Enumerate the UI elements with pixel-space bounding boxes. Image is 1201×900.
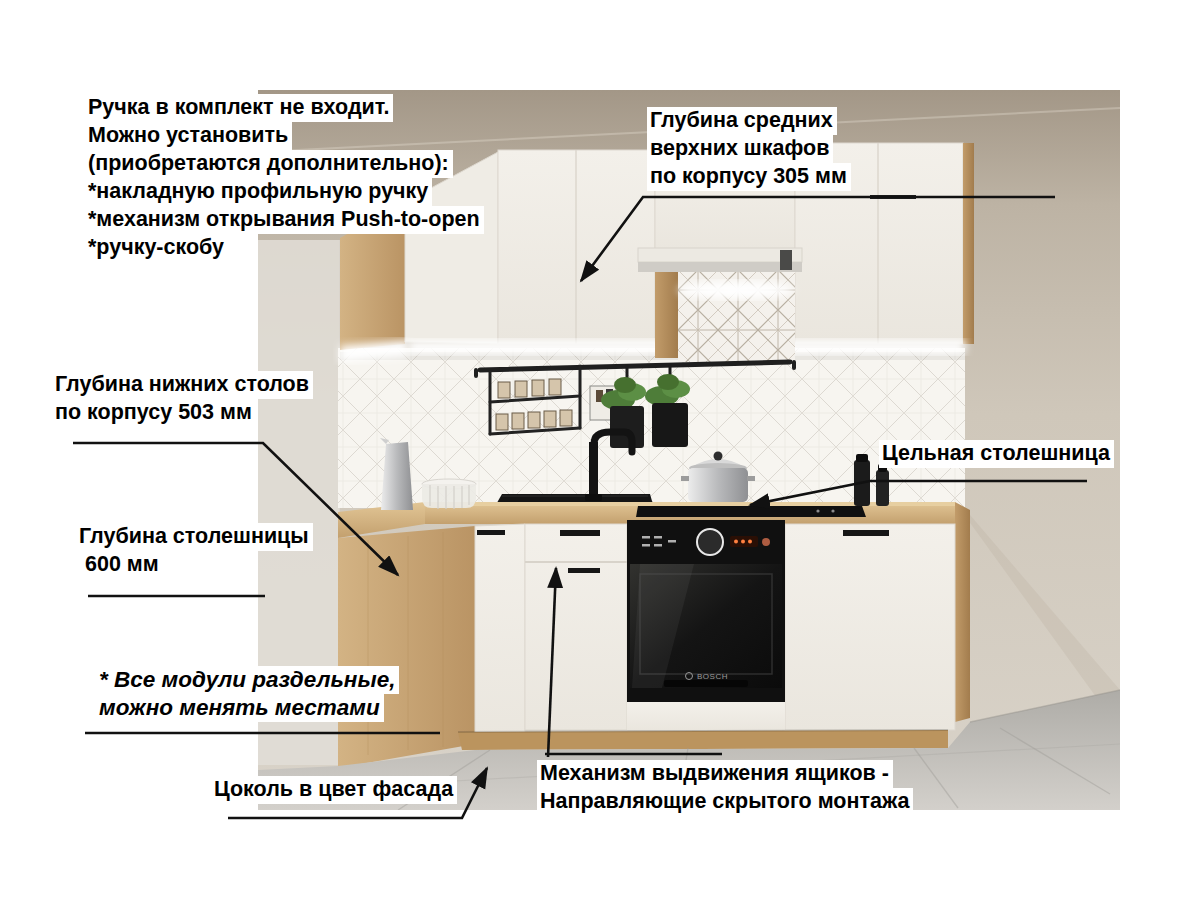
annotation-line: верхних шкафов	[647, 135, 833, 163]
annotation-line: Можно установить	[85, 122, 292, 150]
annotation-line: по корпусу 503 мм	[52, 399, 256, 427]
annotation-line: *ручку-скобу	[85, 234, 228, 262]
oven-brand: BOSCH	[697, 672, 728, 681]
annotation-line: 600 мм	[76, 551, 163, 579]
annotation-line: Механизм выдвижения ящиков -	[537, 760, 893, 788]
annotation-solid-countertop: Цельная столешница	[879, 440, 1114, 468]
drawer-handle-top	[560, 530, 600, 536]
oven-handle	[664, 680, 748, 687]
annotation-drawer-note: Механизм выдвижения ящиков - Направляющи…	[537, 760, 913, 816]
annotation-line: Цоколь в цвет фасада	[211, 776, 457, 804]
drawer-handle-bottom	[568, 568, 600, 573]
annotation-base-depth: Глубина нижних столов по корпусу 503 мм	[52, 371, 313, 427]
annotation-handle-note: Ручка в комплект не входит. Можно устано…	[85, 94, 484, 262]
toe-kick	[458, 730, 948, 750]
annotation-line: Цельная столешница	[879, 440, 1114, 468]
annotation-modules-note: * Все модули раздельные, можно менять ме…	[96, 666, 399, 722]
extractor-hood	[638, 248, 802, 362]
counter-end-panel	[955, 502, 970, 722]
upper-cabinet-handle	[870, 195, 916, 199]
annotation-plinth-note: Цоколь в цвет фасада	[211, 776, 457, 804]
annotation-line: Направляющие скрытого монтажа	[537, 788, 913, 816]
annotated-kitchen-diagram: BOSCH	[0, 0, 1201, 900]
annotation-line: *механизм открывания Push-to-open	[85, 206, 484, 234]
annotation-countertop-depth: Глубина столешницы 600 мм	[76, 523, 313, 579]
annotation-line: Глубина нижних столов	[52, 371, 313, 399]
drawer-unit	[525, 524, 627, 730]
annotation-line: Ручка в комплект не входит.	[85, 94, 393, 122]
annotation-line: *накладную профильную ручку	[85, 178, 432, 206]
oven: BOSCH	[627, 520, 785, 702]
annotation-line: можно менять местами	[96, 694, 384, 722]
base-oak-side-panel	[338, 526, 475, 768]
annotation-line: Глубина столешницы	[76, 523, 313, 551]
annotation-upper-depth: Глубина средних верхних шкафов по корпус…	[647, 107, 851, 191]
annotation-line: по корпусу 305 мм	[647, 163, 851, 191]
annotation-line: (приобретаются дополнительно):	[85, 150, 453, 178]
annotation-line: Глубина средних	[647, 107, 837, 135]
annotation-line: * Все модули раздельные,	[96, 666, 399, 694]
